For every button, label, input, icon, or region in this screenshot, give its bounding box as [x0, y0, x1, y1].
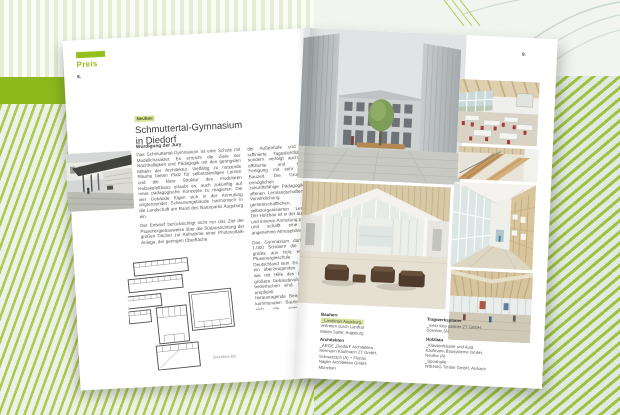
section-label: Preis — [76, 59, 98, 69]
photo-lounge-hall-interior — [298, 181, 451, 310]
article-headline: Neubau Schmuttertal-Gymnasium in Diedorf — [134, 99, 286, 147]
page-number-right: 9. — [522, 52, 526, 57]
jury-heading: Würdigung der Jury — [136, 143, 182, 150]
accent-bar — [76, 51, 105, 59]
photo-classroom-interior — [457, 79, 540, 147]
paragraph: Der Entwurf berücksichtigt nicht nur das… — [140, 218, 245, 246]
magazine-right-page: 9. — [294, 28, 558, 389]
magazine-left-page: Preis 8. Neubau Schmuttertal-Gymnasium i… — [62, 28, 328, 390]
photo-courtyard-exterior — [297, 28, 467, 185]
paragraph: Das Schmuttertal-Gymnasium ist eine Schu… — [136, 147, 243, 219]
category-badge: Neubau — [134, 115, 154, 122]
page-number-left: 8. — [77, 74, 81, 79]
photo-staircase — [457, 146, 538, 183]
photo-corridor-interior — [450, 182, 536, 271]
project-credits: Bauherr _Landkreis Augsburg, vertreten d… — [319, 309, 526, 379]
floor-plan-drawing — [126, 250, 250, 372]
credits-column-1: Bauherr _Landkreis Augsburg, vertreten d… — [319, 309, 414, 374]
credits-column-2: Tragwerksplaner _merz kley partner ZT Gm… — [424, 314, 519, 379]
photo-covered-walkway — [65, 151, 134, 212]
